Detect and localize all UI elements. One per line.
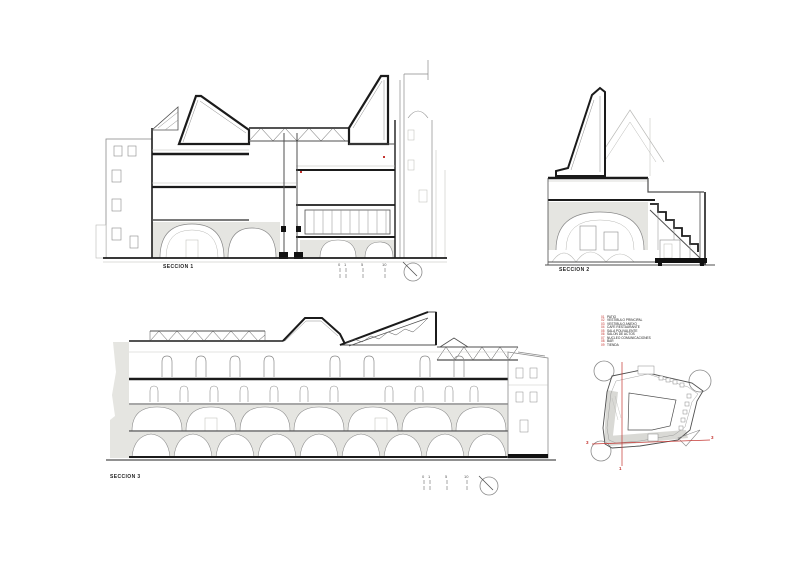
seccion-2-label: SECCION 2: [559, 267, 590, 273]
seccion-1-drawing: [96, 60, 447, 262]
keyplan-mark-left: 3: [586, 440, 589, 445]
scale3-num-1: 1: [428, 474, 430, 479]
scale1-num-1: 1: [344, 262, 346, 267]
keyplan-mark-right: 3: [711, 435, 714, 440]
legend-item: 09TIENDA: [601, 344, 651, 347]
scale3-num-5: 5: [445, 474, 447, 479]
scale3-num-0: 0: [422, 474, 424, 479]
scale-bar-seccion-3: [424, 476, 498, 495]
seccion-3-label: SECCION 3: [110, 474, 141, 480]
scale1-num-0: 0: [338, 262, 340, 267]
scale-bar-seccion-1: [340, 262, 422, 281]
seccion-3-drawing: [106, 312, 556, 460]
seccion-2-drawing: [545, 88, 715, 266]
scale1-num-10: 10: [382, 262, 386, 267]
scale3-num-10: 10: [464, 474, 468, 479]
room-legend: 01PATIO 02VESTIBULO PRINCIPAL 03VESTIBUL…: [601, 316, 651, 347]
seccion-1-label: SECCION 1: [163, 264, 194, 270]
sections-linework: [0, 0, 800, 566]
scale1-num-5: 5: [361, 262, 363, 267]
key-plan-drawing: [591, 361, 711, 466]
keyplan-mark-bottom: 1: [619, 466, 622, 471]
drawing-sheet: SECCION 1 SECCION 2 SECCION 3 0 1 5 10 0…: [0, 0, 800, 566]
